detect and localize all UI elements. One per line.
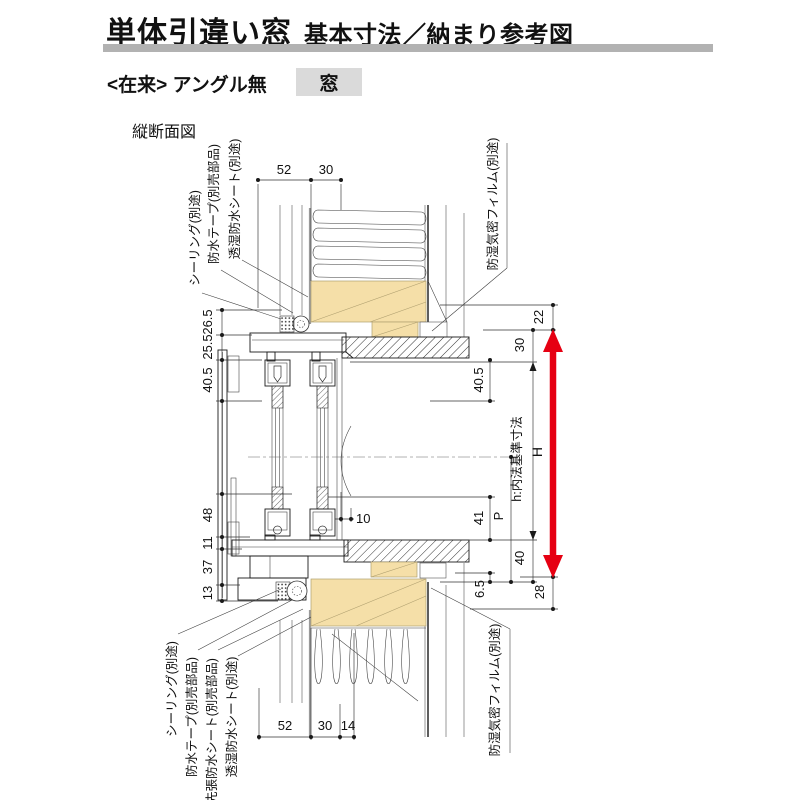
callout-vapor-film-top: 防湿気密フィルム(別途) — [485, 138, 500, 271]
dim-right-28: 28 — [532, 585, 547, 599]
dim-right-41: 41 — [471, 511, 486, 525]
dim-bottom-14: 14 — [341, 718, 355, 733]
callout-waterproof-tape-bottom: 防水テープ(別売部品) — [184, 657, 199, 777]
callout-breathable-sheet-bottom: 透湿防水シート(別途) — [224, 657, 239, 778]
dim-right-p: P — [491, 512, 506, 521]
dim-left-13: 13 — [200, 586, 215, 600]
callout-breathable-sheet-top: 透湿防水シート(別途) — [227, 139, 242, 260]
dim-meeting-gap: 10 — [356, 511, 370, 526]
dim-h-label: h:内法基準寸法 — [509, 416, 524, 501]
dim-right-22: 22 — [531, 310, 546, 324]
dim-top-52: 52 — [277, 162, 291, 177]
wood-framing-top — [311, 281, 447, 337]
page: 単体引違い窓基本寸法／納まり参考図 <在来> アングル無 窓 縦断面図 — [0, 0, 800, 800]
callout-texts: シーリング(別途) 防水テープ(別売部品) 透湿防水シート(別途) 防湿気密フィ… — [164, 138, 502, 800]
dimension-lines — [216, 180, 558, 740]
dimension-ticks — [220, 178, 555, 739]
dim-right-6-5: 6.5 — [472, 580, 487, 598]
callout-waterproof-tape-top: 防水テープ(別売部品) — [206, 144, 221, 264]
dim-left-11: 11 — [200, 536, 215, 550]
sash-interior — [310, 360, 335, 536]
dim-right-40: 40 — [512, 551, 527, 565]
dim-right-30: 30 — [512, 338, 527, 352]
callout-pre-applied-sheet-bottom: 先張防水シート(別売部品) — [204, 658, 219, 800]
frame-head — [250, 333, 353, 361]
insulation-bottom — [311, 628, 426, 701]
dim-height-H: H — [529, 447, 545, 457]
dim-right-40-5: 40.5 — [471, 367, 486, 392]
dim-bottom-52: 52 — [278, 718, 292, 733]
screen-track — [218, 350, 239, 600]
dim-left-26-5: 26.5 — [200, 309, 215, 334]
overall-height-arrow — [543, 329, 563, 578]
vertical-section-drawing: 52 30 52 30 14 10 26.5 25.5 40.5 48 11 3… — [0, 0, 800, 800]
dim-bottom-30: 30 — [318, 718, 332, 733]
callout-vapor-film-bottom: 防湿気密フィルム(別途) — [487, 624, 502, 757]
sash-exterior — [265, 360, 290, 536]
insulation-top — [313, 210, 426, 279]
interior-board-bottom — [344, 540, 469, 562]
wood-framing-bottom — [311, 562, 446, 626]
dim-left-40-5: 40.5 — [200, 367, 215, 392]
dim-left-37: 37 — [200, 560, 215, 574]
interior-board-top — [342, 337, 469, 358]
sill-seal-anchor — [276, 581, 307, 601]
dim-left-25-5: 25.5 — [200, 334, 215, 359]
callout-sealing-bottom: シーリング(別途) — [164, 641, 179, 737]
dim-top-30: 30 — [319, 162, 333, 177]
callout-sealing-top: シーリング(別途) — [187, 190, 202, 286]
head-seal — [280, 316, 309, 332]
dim-left-48: 48 — [200, 508, 215, 522]
